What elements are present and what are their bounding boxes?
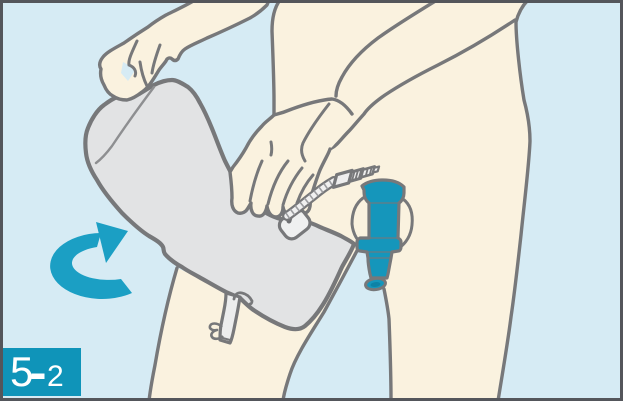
- svg-text:2: 2: [47, 360, 64, 393]
- svg-text:5: 5: [10, 348, 33, 395]
